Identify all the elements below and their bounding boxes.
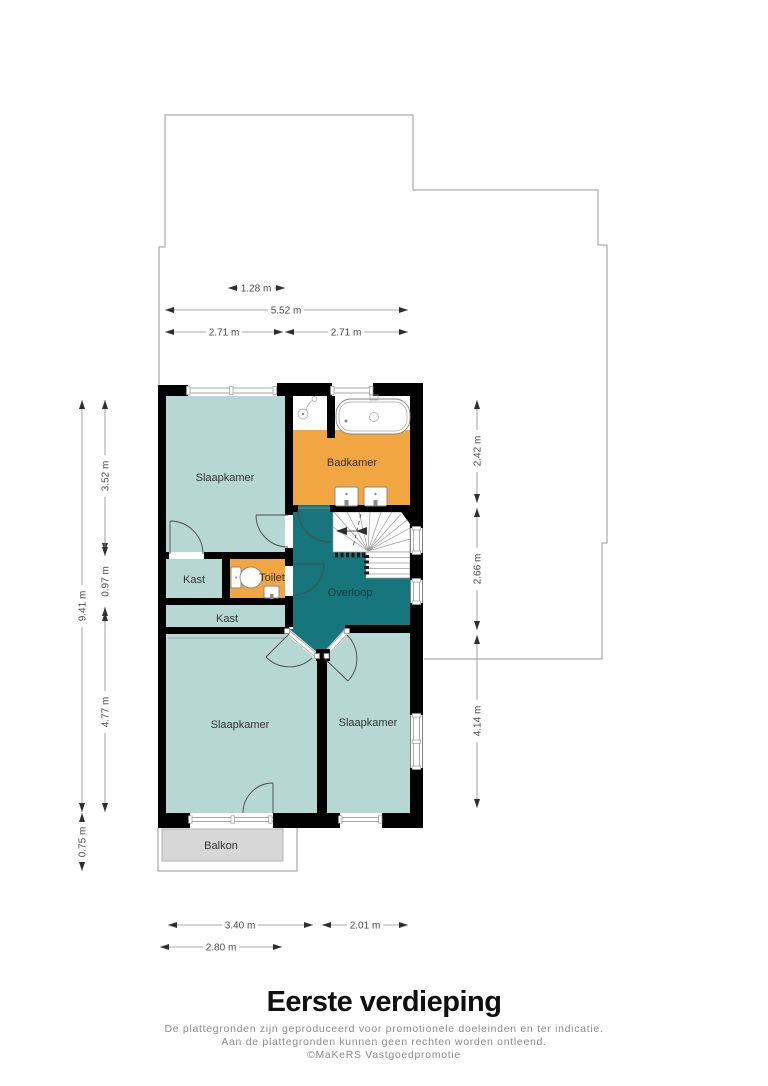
svg-text:2.80 m: 2.80 m: [206, 943, 237, 954]
dim-left-lower: 4.77 m: [101, 612, 112, 812]
svg-text:4.77 m: 4.77 m: [101, 697, 112, 728]
svg-text:5.52 m: 5.52 m: [271, 306, 302, 317]
svg-text:3.40 m: 3.40 m: [225, 921, 256, 932]
dim-top-total: 5.52 m: [165, 306, 408, 317]
dim-top-right-half: 2.71 m: [285, 328, 408, 339]
window-top-left: [187, 386, 278, 395]
copyright: ©MaKeRS Vastgoedpromotie: [0, 1049, 768, 1062]
dim-top-left-half: 2.71 m: [165, 328, 283, 339]
svg-text:2.66 m: 2.66 m: [473, 554, 484, 585]
label-slaapkamer-bottomleft: Slaapkamer: [211, 719, 270, 731]
svg-text:1.28 m: 1.28 m: [241, 284, 272, 295]
svg-text:2.71 m: 2.71 m: [209, 328, 240, 339]
label-slaapkamer-bottomright: Slaapkamer: [339, 717, 398, 729]
floorplan-page: Slaapkamer Badkamer Kast Toilet Kast Ove…: [0, 0, 768, 1086]
dim-left-total: 9.41 m: [78, 400, 89, 812]
dim-left-middle: 0.97 m: [101, 538, 112, 625]
window-right-overloop: [411, 579, 423, 605]
toilet-icon: [231, 567, 262, 588]
dim-left-balcony: 0.75 m: [78, 813, 89, 871]
window-balcony-band: [189, 816, 274, 824]
dim-right-middle: 2.66 m: [473, 508, 484, 630]
svg-text:9.41 m: 9.41 m: [78, 591, 89, 622]
label-toilet: Toilet: [259, 572, 285, 584]
label-overloop: Overloop: [328, 587, 373, 599]
dim-left-upper: 3.52 m: [101, 400, 112, 552]
label-balkon: Balkon: [204, 840, 238, 852]
window-right-bedroom: [411, 714, 423, 770]
svg-text:0.75 m: 0.75 m: [78, 827, 89, 858]
dim-right-lower: 4.14 m: [473, 635, 484, 808]
svg-text:4.14 m: 4.14 m: [473, 706, 484, 737]
label-slaapkamer-topleft: Slaapkamer: [196, 472, 255, 484]
sink-icon: [364, 487, 387, 506]
svg-text:2.71 m: 2.71 m: [331, 328, 362, 339]
dim-right-upper: 2.42 m: [473, 400, 484, 503]
svg-text:2.42 m: 2.42 m: [473, 436, 484, 467]
floorplan-drawing: Slaapkamer Badkamer Kast Toilet Kast Ove…: [0, 0, 768, 1086]
label-kast-left: Kast: [183, 574, 205, 586]
sink-icon: [335, 487, 358, 506]
window-top-bath: [331, 386, 374, 395]
page-title: Eerste verdieping: [0, 986, 768, 1019]
label-badkamer: Badkamer: [327, 457, 377, 469]
dim-top-window: 1.28 m: [228, 284, 285, 295]
disclaimer: De plattegronden zijn geproduceerd voor …: [0, 1023, 768, 1062]
disclaimer-line-1: De plattegronden zijn geproduceerd voor …: [0, 1023, 768, 1036]
bathtub-icon: [336, 395, 410, 434]
dim-bottom-balcony: 2.80 m: [160, 943, 282, 954]
window-bottom-right: [339, 816, 383, 824]
dim-bottom-left-room: 3.40 m: [168, 921, 313, 932]
toilet-sink-icon: [264, 586, 279, 599]
disclaimer-line-2: Aan de plattegronden kunnen geen rechten…: [0, 1036, 768, 1049]
label-kast-wide: Kast: [216, 613, 238, 625]
svg-text:0.97 m: 0.97 m: [101, 566, 112, 597]
dim-bottom-right-room: 2.01 m: [322, 921, 408, 932]
svg-text:2.01 m: 2.01 m: [350, 921, 381, 932]
window-right-stairs: [411, 527, 423, 555]
svg-text:3.52 m: 3.52 m: [101, 461, 112, 492]
